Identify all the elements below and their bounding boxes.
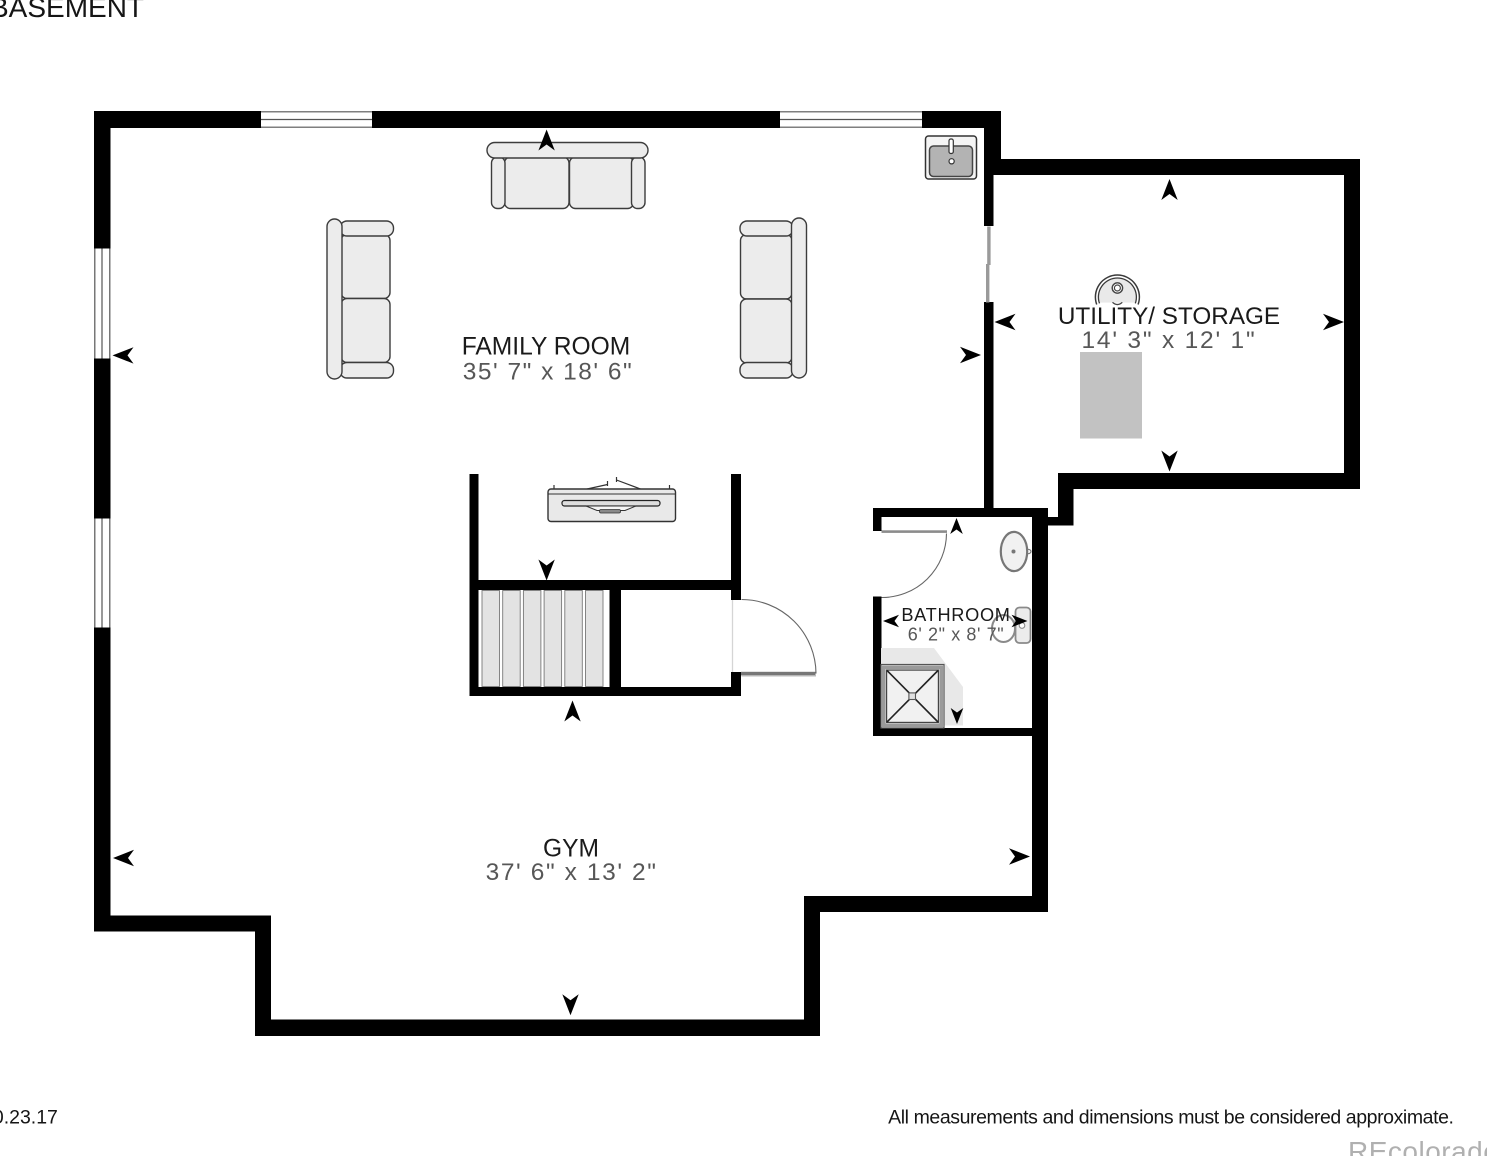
svg-text:UTILITY/ STORAGE: UTILITY/ STORAGE [1058,303,1280,330]
svg-text:14' 3" x 12' 1": 14' 3" x 12' 1" [1082,327,1257,354]
svg-text:6' 2" x 8' 7": 6' 2" x 8' 7" [908,625,1005,645]
svg-text:35' 7" x 18' 6": 35' 7" x 18' 6" [463,359,633,386]
svg-text:BATHROOM: BATHROOM [901,605,1010,625]
svg-text:All measurements and dimension: All measurements and dimensions must be … [888,1107,1453,1129]
svg-text:10.23.17: 10.23.17 [0,1107,58,1129]
svg-text:REcolorado: REcolorado [1348,1136,1487,1156]
svg-text:37' 6" x 13' 2": 37' 6" x 13' 2" [486,859,658,886]
svg-text:FAMILY ROOM: FAMILY ROOM [462,334,631,361]
svg-text:BASEMENT: BASEMENT [0,0,144,23]
